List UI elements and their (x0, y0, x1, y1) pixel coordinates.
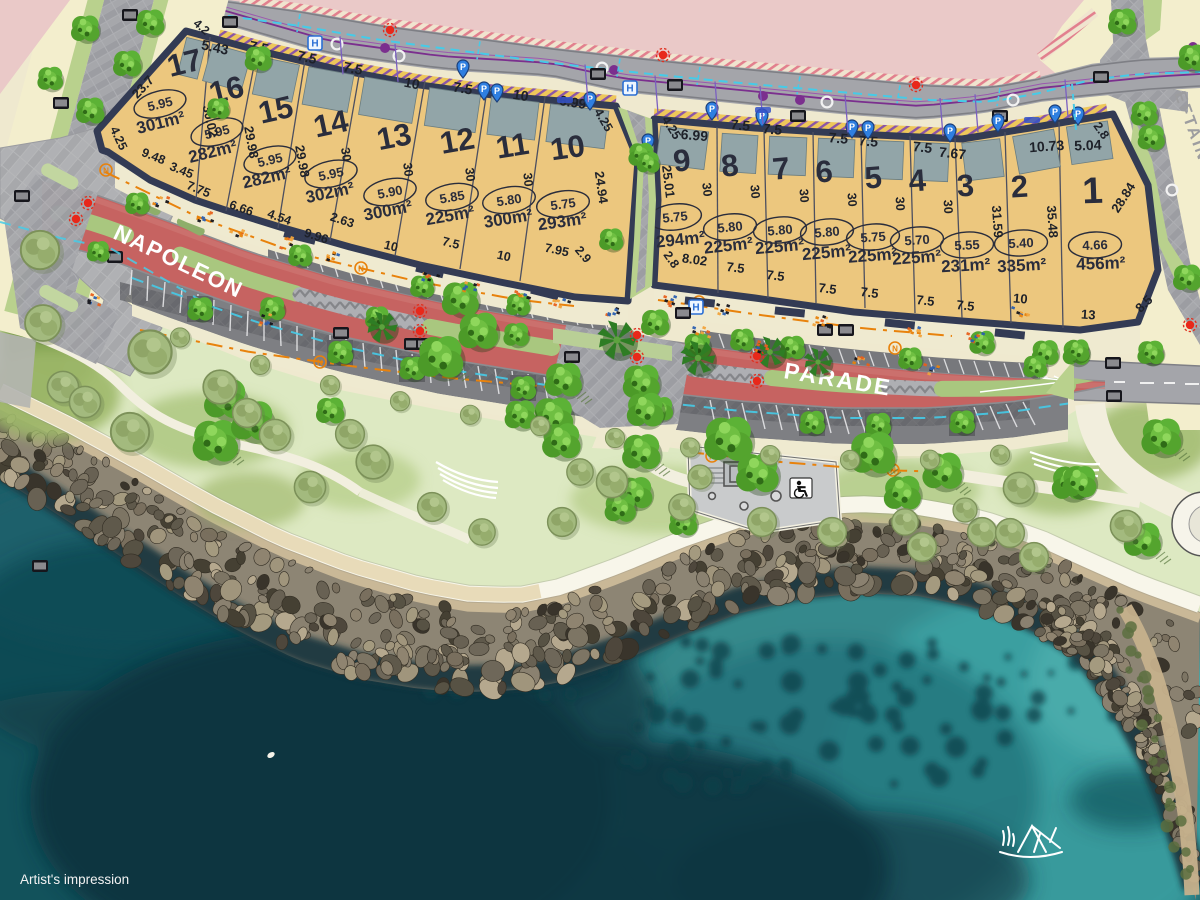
svg-text:30: 30 (747, 184, 762, 199)
svg-text:31.59: 31.59 (989, 205, 1006, 239)
svg-text:7.67: 7.67 (938, 144, 967, 163)
svg-text:7.5: 7.5 (766, 267, 786, 284)
svg-text:30: 30 (699, 182, 714, 197)
svg-text:7.5: 7.5 (452, 79, 474, 98)
svg-text:13: 13 (1081, 307, 1096, 323)
svg-text:30: 30 (462, 167, 477, 182)
svg-text:7.5: 7.5 (912, 138, 933, 156)
svg-text:8: 8 (719, 147, 740, 184)
svg-text:456m²: 456m² (1076, 253, 1126, 274)
svg-text:5: 5 (863, 159, 883, 195)
svg-text:1: 1 (1082, 170, 1104, 212)
svg-text:30: 30 (520, 172, 535, 187)
svg-text:6.99: 6.99 (680, 126, 709, 144)
svg-text:225m²: 225m² (891, 246, 942, 268)
svg-text:10.73: 10.73 (1029, 137, 1065, 155)
svg-text:225m²: 225m² (847, 244, 898, 266)
svg-text:10: 10 (496, 248, 513, 265)
svg-text:5.70: 5.70 (904, 232, 930, 249)
svg-text:335m²: 335m² (997, 255, 1047, 277)
svg-text:30: 30 (338, 147, 354, 163)
svg-text:N: N (317, 358, 323, 367)
svg-text:7.5: 7.5 (730, 116, 751, 134)
svg-text:5.04: 5.04 (1074, 137, 1102, 154)
svg-text:30: 30 (941, 199, 956, 214)
svg-text:13: 13 (374, 116, 415, 157)
svg-text:4.66: 4.66 (1082, 237, 1108, 253)
svg-text:35.48: 35.48 (1044, 205, 1061, 239)
svg-text:7.5: 7.5 (818, 280, 838, 297)
svg-text:2: 2 (1010, 169, 1029, 205)
svg-text:6: 6 (814, 153, 834, 189)
svg-text:30: 30 (845, 192, 860, 207)
svg-text:5.80: 5.80 (814, 223, 841, 240)
svg-text:10: 10 (548, 128, 587, 167)
svg-text:30: 30 (893, 196, 908, 211)
svg-text:30: 30 (400, 162, 415, 177)
svg-text:3: 3 (956, 168, 975, 204)
svg-text:Artist's impression: Artist's impression (20, 872, 129, 887)
svg-text:5.75: 5.75 (662, 208, 689, 226)
svg-text:10: 10 (1013, 290, 1029, 306)
svg-text:11: 11 (493, 126, 531, 166)
svg-text:N: N (103, 166, 109, 175)
svg-text:4: 4 (907, 162, 927, 198)
svg-text:12: 12 (437, 120, 477, 160)
svg-text:7.5: 7.5 (726, 259, 746, 276)
svg-text:30: 30 (797, 188, 812, 203)
svg-text:10: 10 (512, 86, 530, 104)
svg-text:7.5: 7.5 (828, 129, 849, 147)
svg-text:5.40: 5.40 (1008, 235, 1034, 251)
svg-text:7.5: 7.5 (956, 297, 976, 314)
svg-text:7.5: 7.5 (860, 284, 880, 301)
svg-text:5.75: 5.75 (860, 229, 886, 246)
svg-text:N: N (892, 344, 898, 353)
svg-text:10: 10 (403, 74, 422, 93)
svg-text:7.5: 7.5 (916, 292, 936, 309)
svg-text:231m²: 231m² (941, 255, 991, 277)
svg-text:7: 7 (771, 150, 791, 186)
svg-text:5.80: 5.80 (717, 218, 744, 236)
svg-text:5.55: 5.55 (954, 237, 980, 253)
svg-text:N: N (358, 264, 364, 273)
